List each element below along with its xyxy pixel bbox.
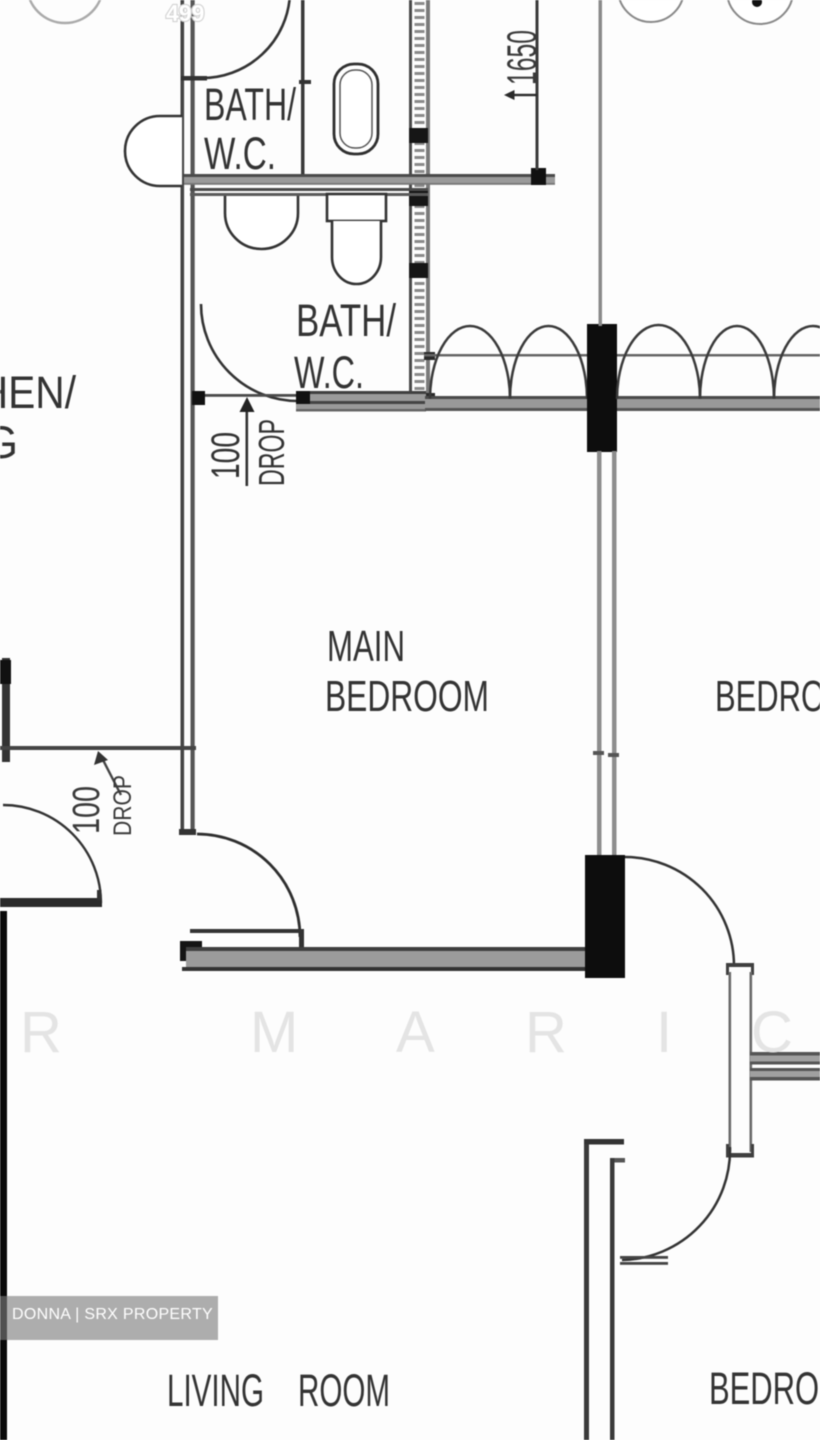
svg-text:R: R	[525, 1000, 567, 1065]
svg-text:ROOM: ROOM	[298, 1365, 390, 1416]
svg-text:C: C	[751, 1000, 793, 1065]
svg-text:BEDROOM: BEDROOM	[709, 1363, 820, 1414]
svg-text:BATH/: BATH/	[204, 79, 296, 130]
svg-text:1650: 1650	[498, 30, 545, 85]
svg-text:BEDROOM: BEDROOM	[325, 672, 489, 721]
svg-text:BEDROOM: BEDROOM	[715, 672, 820, 721]
svg-text:I: I	[656, 1000, 672, 1065]
svg-text:W.C.: W.C.	[204, 128, 276, 179]
svg-text:499: 499	[166, 0, 204, 26]
svg-text:W.C.: W.C.	[294, 347, 364, 398]
svg-text:DROP: DROP	[109, 775, 137, 836]
svg-text:M: M	[250, 1000, 298, 1065]
svg-text:DINING: DINING	[0, 417, 18, 468]
svg-text:BATH/: BATH/	[296, 295, 396, 346]
svg-text:MAIN: MAIN	[327, 622, 405, 671]
svg-text:R: R	[20, 1000, 62, 1065]
svg-text:KITCHEN/: KITCHEN/	[0, 367, 76, 418]
svg-text:100: 100	[66, 786, 108, 834]
svg-text:100: 100	[204, 432, 248, 479]
svg-text:A: A	[396, 1000, 435, 1065]
svg-text:DROP: DROP	[251, 419, 292, 486]
svg-text:LIVING: LIVING	[167, 1365, 264, 1416]
